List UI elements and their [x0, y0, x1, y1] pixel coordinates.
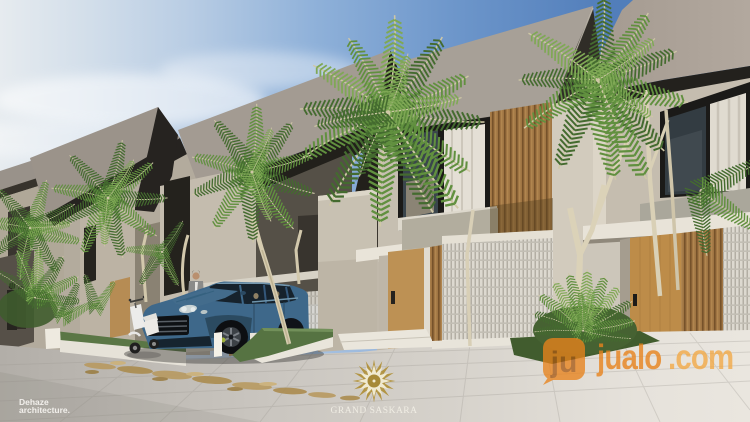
svg-text:GRAND SASKARA: GRAND SASKARA: [331, 406, 418, 416]
svg-text:.com: .com: [668, 338, 733, 377]
svg-text:jualo: jualo: [596, 338, 661, 377]
svg-text:architecture.: architecture.: [19, 405, 70, 415]
svg-text:ju: ju: [550, 346, 578, 379]
